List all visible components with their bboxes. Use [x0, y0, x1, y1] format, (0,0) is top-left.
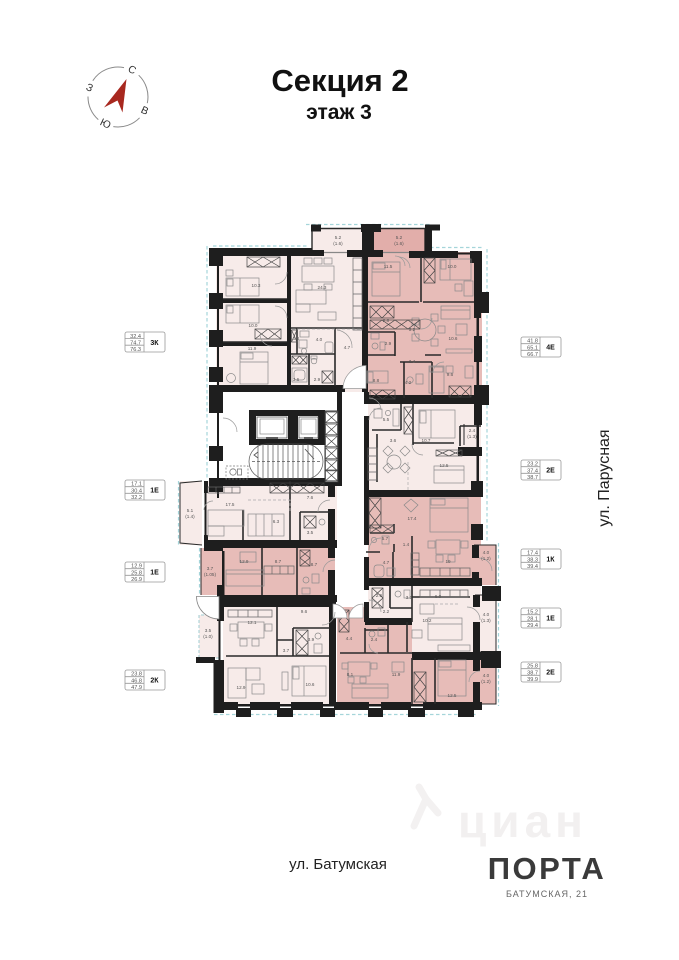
- svg-text:2.6: 2.6: [376, 593, 383, 598]
- svg-text:2.2: 2.2: [383, 609, 390, 614]
- svg-text:9.6: 9.6: [447, 372, 454, 377]
- svg-text:4.0: 4.0: [316, 337, 323, 342]
- svg-text:37.4: 37.4: [527, 468, 538, 474]
- svg-text:4.7: 4.7: [383, 560, 390, 565]
- svg-text:25.8: 25.8: [527, 664, 538, 670]
- svg-text:24.3: 24.3: [318, 285, 327, 290]
- svg-text:39.4: 39.4: [527, 564, 538, 570]
- svg-text:1Е: 1Е: [150, 570, 159, 577]
- svg-text:65.1: 65.1: [527, 345, 538, 351]
- svg-text:ПОРТА: ПОРТА: [488, 851, 607, 886]
- svg-text:(1.0): (1.0): [203, 634, 213, 639]
- svg-text:3.9: 3.9: [308, 637, 315, 642]
- svg-text:8.8: 8.8: [373, 378, 380, 383]
- svg-text:10.7: 10.7: [422, 438, 431, 443]
- svg-text:2.9: 2.9: [314, 377, 321, 382]
- svg-text:(1.2): (1.2): [481, 679, 491, 684]
- svg-text:10.0: 10.0: [249, 323, 258, 328]
- svg-text:46.8: 46.8: [131, 678, 142, 684]
- svg-text:2Е: 2Е: [546, 468, 555, 475]
- svg-text:38.7: 38.7: [527, 475, 538, 481]
- svg-text:(1.2): (1.2): [481, 556, 491, 561]
- svg-text:2.9: 2.9: [385, 341, 392, 346]
- svg-text:(1.05): (1.05): [204, 572, 216, 577]
- svg-text:11.5: 11.5: [384, 264, 393, 269]
- svg-text:1Е: 1Е: [546, 616, 555, 623]
- svg-text:32.4: 32.4: [130, 334, 141, 340]
- svg-text:32.2: 32.2: [131, 495, 142, 501]
- svg-text:17.4: 17.4: [527, 551, 538, 557]
- svg-text:17.4: 17.4: [408, 516, 417, 521]
- svg-text:8.7: 8.7: [311, 562, 318, 567]
- svg-text:26.9: 26.9: [131, 577, 142, 583]
- svg-text:7.6: 7.6: [307, 495, 314, 500]
- svg-text:3.7: 3.7: [283, 648, 290, 653]
- svg-text:(1.6): (1.6): [394, 241, 404, 246]
- svg-text:5.5: 5.5: [383, 417, 390, 422]
- svg-text:2К: 2К: [150, 678, 159, 685]
- svg-text:74.7: 74.7: [130, 340, 141, 346]
- svg-text:2.8: 2.8: [383, 318, 390, 323]
- svg-text:БАТУМСКАЯ, 21: БАТУМСКАЯ, 21: [506, 889, 588, 899]
- svg-text:10.6: 10.6: [449, 336, 458, 341]
- svg-text:4.0: 4.0: [483, 550, 490, 555]
- svg-text:12.9: 12.9: [131, 564, 142, 570]
- svg-text:19: 19: [445, 559, 451, 564]
- svg-text:15.2: 15.2: [527, 610, 538, 616]
- svg-text:циан: циан: [458, 795, 588, 847]
- svg-text:4.7: 4.7: [344, 345, 351, 350]
- svg-text:39.9: 39.9: [527, 677, 538, 683]
- svg-text:11.9: 11.9: [392, 672, 401, 677]
- svg-text:12.5: 12.5: [440, 463, 449, 468]
- svg-text:4Е: 4Е: [546, 345, 555, 352]
- svg-text:5.1: 5.1: [187, 508, 194, 513]
- svg-text:3К: 3К: [150, 340, 159, 347]
- svg-text:23.2: 23.2: [527, 462, 538, 468]
- svg-text:1Е: 1Е: [150, 488, 159, 495]
- svg-text:3.5: 3.5: [205, 628, 212, 633]
- svg-text:2.4: 2.4: [469, 428, 476, 433]
- svg-text:12.5: 12.5: [448, 693, 457, 698]
- svg-text:38.3: 38.3: [527, 557, 538, 563]
- svg-text:этаж 3: этаж 3: [306, 101, 372, 124]
- svg-text:12.9: 12.9: [240, 559, 249, 564]
- svg-text:29.4: 29.4: [527, 623, 538, 629]
- svg-text:10.0: 10.0: [448, 264, 457, 269]
- svg-text:17.5: 17.5: [226, 502, 235, 507]
- svg-text:6.3: 6.3: [273, 519, 280, 524]
- svg-text:8.1: 8.1: [347, 672, 354, 677]
- svg-text:(1.3): (1.3): [481, 618, 491, 623]
- svg-text:4.0: 4.0: [483, 673, 490, 678]
- svg-text:3.6: 3.6: [293, 377, 300, 382]
- svg-text:4.2: 4.2: [405, 380, 412, 385]
- svg-text:6.0: 6.0: [435, 594, 442, 599]
- svg-text:10.6: 10.6: [306, 682, 315, 687]
- svg-text:5.2: 5.2: [335, 235, 342, 240]
- svg-text:30.4: 30.4: [131, 488, 142, 494]
- svg-text:(1.3): (1.3): [467, 434, 477, 439]
- svg-text:8.7: 8.7: [275, 559, 282, 564]
- svg-text:17.1: 17.1: [131, 482, 142, 488]
- svg-text:28.1: 28.1: [527, 616, 538, 622]
- svg-text:76.3: 76.3: [130, 347, 141, 353]
- svg-text:3.4: 3.4: [409, 359, 416, 364]
- svg-text:12.9: 12.9: [237, 685, 246, 690]
- svg-text:47.9: 47.9: [131, 685, 142, 691]
- svg-text:(1.4): (1.4): [185, 514, 195, 519]
- svg-text:12.1: 12.1: [248, 620, 257, 625]
- svg-text:0.8: 0.8: [293, 336, 300, 341]
- svg-text:1К: 1К: [546, 557, 555, 564]
- svg-text:2Е: 2Е: [546, 670, 555, 677]
- svg-text:3.7: 3.7: [207, 566, 214, 571]
- svg-text:66.7: 66.7: [527, 352, 538, 358]
- svg-text:ул. Парусная: ул. Парусная: [596, 429, 613, 526]
- svg-text:23.8: 23.8: [131, 672, 142, 678]
- svg-text:4.4: 4.4: [346, 636, 353, 641]
- svg-text:3.5: 3.5: [307, 530, 314, 535]
- svg-text:9.6: 9.6: [301, 609, 308, 614]
- svg-text:3.6: 3.6: [390, 438, 397, 443]
- svg-text:1.4: 1.4: [403, 542, 410, 547]
- svg-text:4.0: 4.0: [483, 612, 490, 617]
- svg-text:10.2: 10.2: [423, 618, 432, 623]
- svg-text:5.2: 5.2: [396, 235, 403, 240]
- svg-text:38.7: 38.7: [527, 670, 538, 676]
- svg-text:2.4: 2.4: [371, 637, 378, 642]
- svg-text:ул. Батумская: ул. Батумская: [289, 856, 387, 873]
- svg-text:10.3: 10.3: [252, 283, 261, 288]
- svg-text:5.2: 5.2: [409, 327, 416, 332]
- svg-text:25.8: 25.8: [131, 570, 142, 576]
- svg-text:11.9: 11.9: [248, 346, 257, 351]
- svg-text:3.1: 3.1: [406, 595, 413, 600]
- svg-text:5.7: 5.7: [382, 536, 389, 541]
- svg-text:Секция 2: Секция 2: [271, 63, 408, 98]
- svg-text:(1.6): (1.6): [333, 241, 343, 246]
- svg-text:41.8: 41.8: [527, 339, 538, 345]
